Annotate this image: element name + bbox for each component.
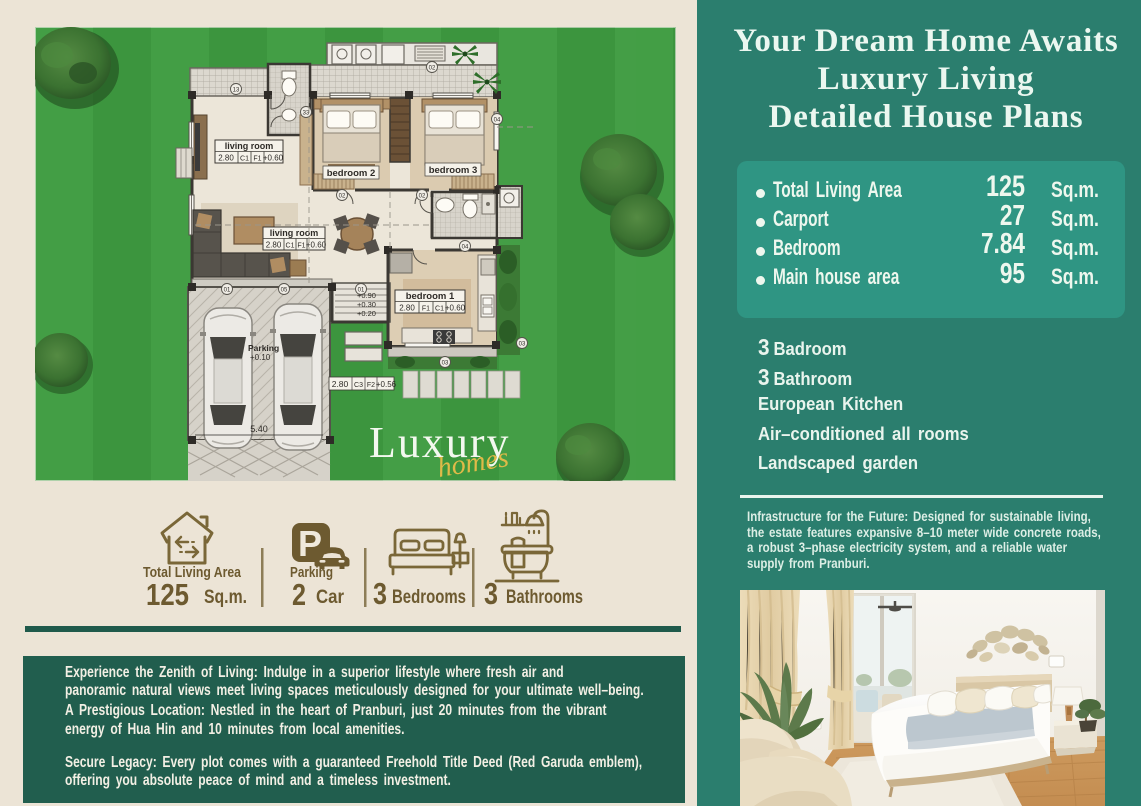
- svg-text:bedroom 2: bedroom 2: [327, 168, 376, 179]
- svg-text:F1: F1: [253, 156, 261, 163]
- svg-text:05: 05: [281, 288, 288, 294]
- svg-text:+0.30: +0.30: [357, 300, 376, 309]
- svg-text:bedroom 1: bedroom 1: [406, 291, 455, 302]
- svg-text:02: 02: [339, 194, 346, 200]
- svg-text:bedroom 3: bedroom 3: [429, 165, 478, 176]
- svg-text:2: 2: [292, 577, 306, 612]
- svg-text:F2: F2: [367, 382, 375, 389]
- svg-text:C1: C1: [435, 306, 444, 313]
- svg-text:2.80: 2.80: [399, 304, 415, 313]
- svg-text:02: 02: [429, 66, 436, 72]
- svg-text:F1: F1: [297, 243, 305, 250]
- svg-text:Parking: Parking: [248, 343, 279, 353]
- svg-text:Sq.m.: Sq.m.: [204, 587, 247, 608]
- svg-text:living room: living room: [270, 228, 319, 238]
- svg-text:+0.60: +0.60: [263, 154, 284, 163]
- svg-text:+0.60: +0.60: [445, 304, 466, 313]
- svg-text:+0.56: +0.56: [376, 380, 397, 389]
- svg-text:C3: C3: [354, 382, 363, 389]
- svg-text:Bedrooms: Bedrooms: [392, 587, 466, 608]
- svg-text:+0.10: +0.10: [250, 353, 271, 362]
- svg-text:3: 3: [484, 576, 498, 611]
- svg-text:13: 13: [233, 88, 240, 94]
- svg-text:01: 01: [224, 288, 231, 294]
- svg-text:02: 02: [419, 194, 426, 200]
- svg-text:2.80: 2.80: [266, 241, 282, 250]
- svg-text:Car: Car: [316, 587, 345, 608]
- svg-text:C1: C1: [240, 156, 249, 163]
- svg-text:04: 04: [462, 245, 469, 251]
- svg-text:C1: C1: [286, 243, 295, 250]
- svg-text:F1: F1: [422, 306, 430, 313]
- svg-text:125: 125: [146, 577, 189, 612]
- svg-text:01: 01: [358, 288, 365, 294]
- svg-text:03: 03: [519, 342, 526, 348]
- svg-text:5.40: 5.40: [250, 424, 268, 434]
- svg-text:03: 03: [442, 361, 449, 367]
- svg-text:3: 3: [373, 576, 387, 611]
- svg-text:2.80: 2.80: [218, 154, 234, 163]
- svg-text:+0.20: +0.20: [357, 309, 376, 318]
- svg-text:04: 04: [494, 118, 501, 124]
- svg-text:2.80: 2.80: [332, 379, 349, 389]
- svg-text:living room: living room: [225, 141, 274, 151]
- svg-text:Bathrooms: Bathrooms: [506, 587, 583, 608]
